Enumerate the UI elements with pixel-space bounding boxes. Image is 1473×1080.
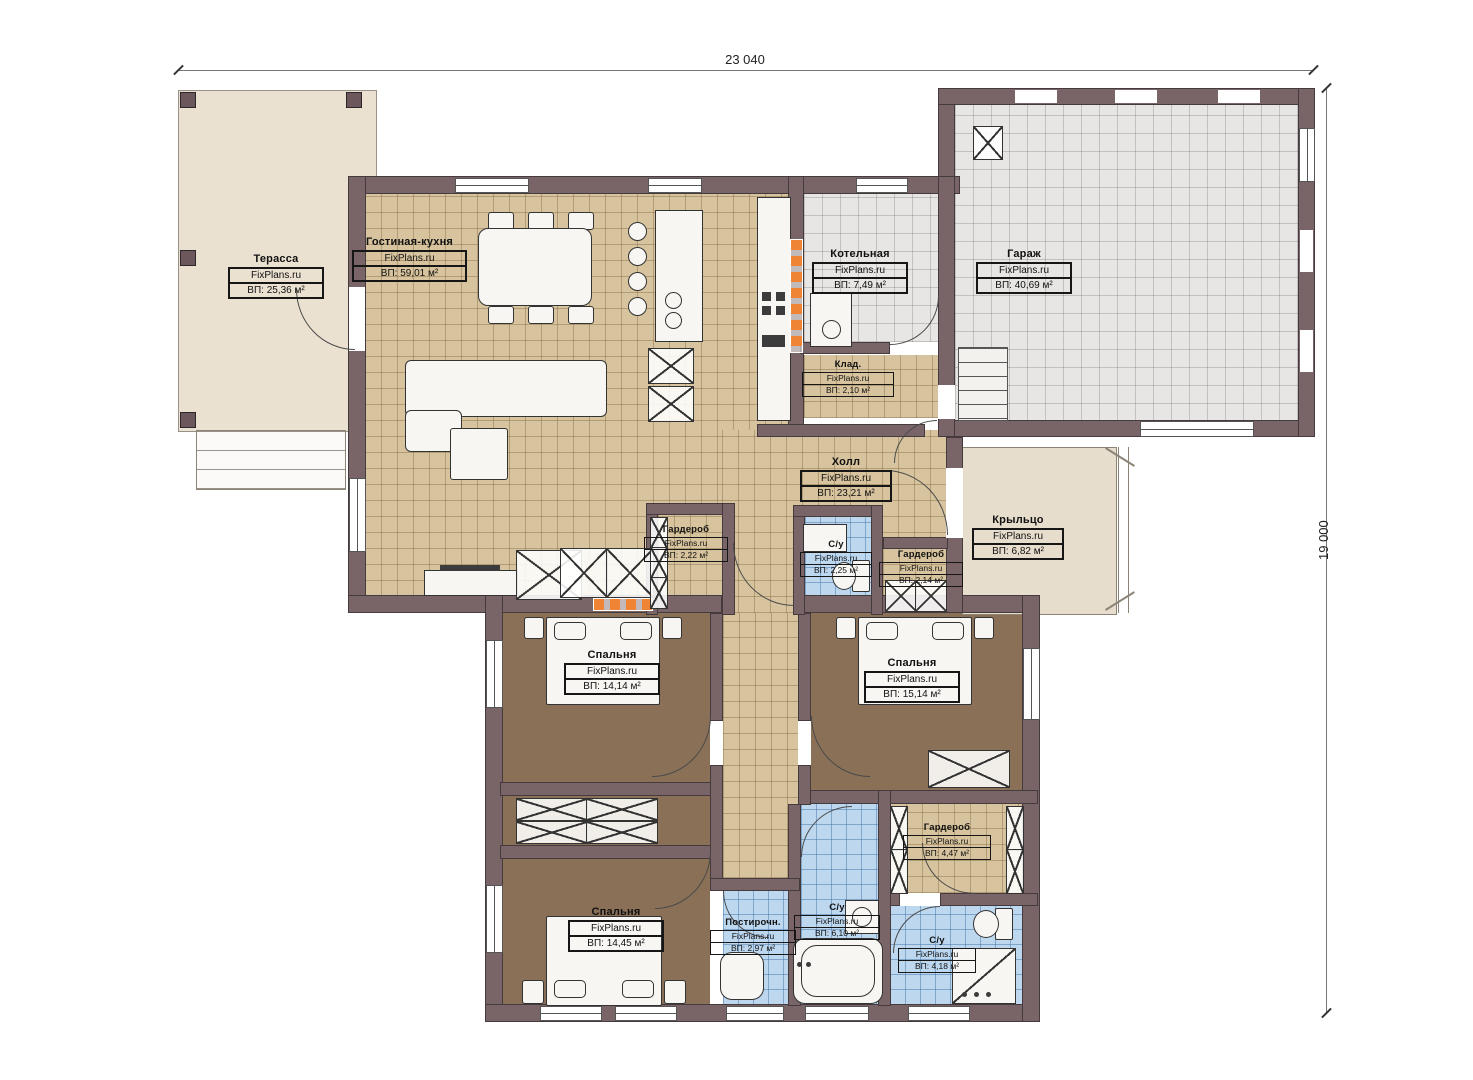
garage-pilaster xyxy=(1300,330,1313,372)
window xyxy=(648,178,702,193)
watermark-text: FixPlans.ru xyxy=(711,931,795,943)
wall-segment xyxy=(757,424,925,437)
window xyxy=(856,178,908,193)
room-area: ВП: 2,14 м² xyxy=(880,575,962,586)
wall-segment xyxy=(890,893,900,906)
room-name: С/у xyxy=(794,903,880,914)
faucet-dot xyxy=(797,962,802,967)
garage-pilaster xyxy=(1115,90,1157,103)
room-area: ВП: 4,18 м² xyxy=(899,961,975,972)
room-area: ВП: 2,97 м² xyxy=(711,943,795,954)
pillow xyxy=(620,622,652,640)
pillow xyxy=(554,622,586,640)
boiler-dial xyxy=(822,320,841,339)
stove-burner xyxy=(776,306,785,315)
radiator xyxy=(594,599,652,610)
dimension-line-top xyxy=(178,70,1313,71)
wall-segment xyxy=(793,505,883,517)
room-label-bedroom1: Спальня FixPlans.ru ВП: 14,14 м² xyxy=(564,649,660,695)
dining-table xyxy=(478,228,592,306)
room-name: Гостиная-кухня xyxy=(352,236,467,249)
stairs xyxy=(958,347,1008,421)
chair xyxy=(568,306,594,324)
terrace-post xyxy=(180,92,196,108)
closet-hatch xyxy=(560,548,608,598)
vent-shaft xyxy=(973,126,1003,160)
closet-hatch xyxy=(516,798,588,821)
room-area: ВП: 40,69 м² xyxy=(978,279,1070,292)
shower-dot xyxy=(986,992,991,997)
room-name: С/у xyxy=(898,936,976,947)
closet-hatch xyxy=(586,798,658,821)
room-area: ВП: 7,49 м² xyxy=(814,279,906,292)
appliance xyxy=(648,386,694,422)
room-label-wc3: С/у FixPlans.ru ВП: 4,18 м² xyxy=(898,936,976,973)
nightstand xyxy=(664,980,686,1004)
closet-hatch xyxy=(650,577,668,609)
room-name: Крыльцо xyxy=(972,514,1064,527)
stove-burner xyxy=(762,292,771,301)
garage-pilaster xyxy=(1218,90,1260,103)
room-label-wardrobe3: Гардероб FixPlans.ru ВП: 4,47 м² xyxy=(903,823,991,860)
room-area: ВП: 6,82 м² xyxy=(974,545,1062,558)
watermark-text: FixPlans.ru xyxy=(566,665,658,680)
watermark-text: FixPlans.ru xyxy=(899,949,975,961)
porch-step-line xyxy=(1128,447,1129,613)
room-label-hall: Холл FixPlans.ru ВП: 23,21 м² xyxy=(800,456,892,502)
stove-burner xyxy=(776,292,785,301)
watermark-text: FixPlans.ru xyxy=(803,373,893,385)
watermark-text: FixPlans.ru xyxy=(230,269,322,284)
room-area: ВП: 25,36 м² xyxy=(230,284,322,297)
window xyxy=(1299,128,1315,182)
room-area: ВП: 59,01 м² xyxy=(354,267,465,280)
room-name: Спальня xyxy=(864,657,960,670)
nightstand xyxy=(524,617,544,639)
room-label-wardrobe1: Гардероб FixPlans.ru ВП: 2,22 м² xyxy=(644,525,728,562)
bathtub-inner xyxy=(801,945,875,997)
washing-machine xyxy=(720,952,764,1000)
window xyxy=(805,1006,869,1021)
faucet-dot xyxy=(806,962,811,967)
room-label-wc1: С/у FixPlans.ru ВП: 2,25 м² xyxy=(800,540,872,577)
terrace-post xyxy=(346,92,362,108)
room-label-wardrobe2: Гардероб FixPlans.ru ВП: 2,14 м² xyxy=(879,550,963,587)
pillow xyxy=(866,622,898,640)
room-label-garage: Гараж FixPlans.ru ВП: 40,69 м² xyxy=(976,248,1072,294)
room-name: Спальня xyxy=(564,649,660,662)
watermark-text: FixPlans.ru xyxy=(802,472,890,487)
tv xyxy=(440,565,500,571)
porch-step-line xyxy=(1118,447,1119,613)
room-name: Постирочн. xyxy=(710,918,796,929)
garage-pilaster xyxy=(1300,230,1313,272)
dimension-height-label: 19 000 xyxy=(1316,505,1331,575)
room-area: ВП: 14,14 м² xyxy=(566,680,658,693)
wall-segment xyxy=(710,765,723,885)
bar-stool xyxy=(628,272,647,291)
sink-bowl xyxy=(665,292,682,309)
room-area: ВП: 15,14 м² xyxy=(866,688,958,701)
shower-dot xyxy=(974,992,979,997)
chair xyxy=(488,306,514,324)
room-label-wc2: С/у FixPlans.ru ВП: 6,10 м² xyxy=(794,903,880,940)
room-area: ВП: 14,45 м² xyxy=(570,937,662,950)
tv-stand xyxy=(424,570,518,596)
room-area: ВП: 2,10 м² xyxy=(803,385,893,396)
watermark-text: FixPlans.ru xyxy=(880,563,962,575)
watermark-text: FixPlans.ru xyxy=(570,922,662,937)
pillow xyxy=(622,980,654,998)
terrace-post xyxy=(180,250,196,266)
watermark-text: FixPlans.ru xyxy=(801,553,871,565)
watermark-text: FixPlans.ru xyxy=(974,530,1062,545)
shower-dot xyxy=(962,992,967,997)
garage-pilaster xyxy=(1015,90,1057,103)
room-name: Котельная xyxy=(812,248,908,261)
room-name: С/у xyxy=(800,540,872,551)
room-area: ВП: 2,22 м² xyxy=(645,550,727,561)
room-area: ВП: 6,10 м² xyxy=(795,928,879,939)
wall-segment xyxy=(646,503,734,515)
watermark-text: FixPlans.ru xyxy=(814,264,906,279)
front-door-opening xyxy=(946,468,963,538)
sink-bowl xyxy=(665,312,682,329)
window xyxy=(486,885,503,953)
window xyxy=(455,178,529,193)
watermark-text: FixPlans.ru xyxy=(645,538,727,550)
wall-segment xyxy=(798,765,811,805)
window xyxy=(1023,648,1040,720)
window xyxy=(540,1006,602,1021)
window xyxy=(615,1006,677,1021)
room-name: Клад. xyxy=(802,360,894,371)
window xyxy=(349,478,366,552)
wall-segment xyxy=(348,595,502,613)
terrace-steps xyxy=(196,430,346,490)
room-label-bedroom3: Спальня FixPlans.ru ВП: 14,45 м² xyxy=(568,906,664,952)
wall-segment xyxy=(710,613,723,721)
room-name: Гардероб xyxy=(644,525,728,536)
nightstand xyxy=(662,617,682,639)
room-label-bedroom2: Спальня FixPlans.ru ВП: 15,14 м² xyxy=(864,657,960,703)
bar-stool xyxy=(628,297,647,316)
closet-hatch xyxy=(1006,806,1024,851)
window xyxy=(726,1006,784,1021)
stove-burner xyxy=(762,306,771,315)
watermark-text: FixPlans.ru xyxy=(978,264,1070,279)
watermark-text: FixPlans.ru xyxy=(904,836,990,848)
nightstand xyxy=(974,617,994,639)
radiator xyxy=(791,240,802,352)
closet-hatch xyxy=(516,821,588,844)
toilet-bowl xyxy=(973,910,999,938)
room-label-boiler: Котельная FixPlans.ru ВП: 7,49 м² xyxy=(812,248,908,294)
room-label-storage: Клад. FixPlans.ru ВП: 2,10 м² xyxy=(802,360,894,397)
room-label-terrace: Терасса FixPlans.ru ВП: 25,36 м² xyxy=(228,253,324,299)
room-area: ВП: 4,47 м² xyxy=(904,848,990,859)
garage-door xyxy=(1140,421,1254,437)
door-opening xyxy=(938,385,955,419)
wall-segment xyxy=(883,537,948,549)
room-name: Терасса xyxy=(228,253,324,266)
nightstand xyxy=(836,617,856,639)
room-label-porch: Крыльцо FixPlans.ru ВП: 6,82 м² xyxy=(972,514,1064,560)
window xyxy=(908,1006,970,1021)
floor-plan: 23 040 19 000 xyxy=(0,0,1473,1080)
room-name: Гардероб xyxy=(879,550,963,561)
bar-stool xyxy=(628,222,647,241)
room-name: Спальня xyxy=(568,906,664,919)
room-name: Холл xyxy=(800,456,892,469)
room-name: Гардероб xyxy=(903,823,991,834)
wall-segment xyxy=(798,790,1038,804)
wall-segment xyxy=(500,782,722,796)
coffee-table xyxy=(450,428,508,480)
wall-segment xyxy=(946,420,1315,437)
wall-segment xyxy=(710,878,800,891)
appliance xyxy=(648,348,694,384)
wall-segment xyxy=(798,613,811,721)
chair xyxy=(528,306,554,324)
room-name: Гараж xyxy=(976,248,1072,261)
oven xyxy=(762,335,785,347)
nightstand xyxy=(522,980,544,1004)
closet-hatch xyxy=(586,821,658,844)
room-label-living: Гостиная-кухня FixPlans.ru ВП: 59,01 м² xyxy=(352,236,467,282)
sofa xyxy=(405,360,607,417)
room-label-laundry: Постирочн. FixPlans.ru ВП: 2,97 м² xyxy=(710,918,796,955)
watermark-text: FixPlans.ru xyxy=(866,673,958,688)
room-area: ВП: 2,25 м² xyxy=(801,565,871,576)
room-area: ВП: 23,21 м² xyxy=(802,487,890,500)
closet-hatch xyxy=(1006,849,1024,894)
terrace-post xyxy=(180,412,196,428)
bar-stool xyxy=(628,247,647,266)
watermark-text: FixPlans.ru xyxy=(795,916,879,928)
corridor-floor xyxy=(723,613,798,878)
wall-segment xyxy=(940,893,1038,906)
window xyxy=(486,640,503,708)
watermark-text: FixPlans.ru xyxy=(354,252,465,267)
pillow xyxy=(932,622,964,640)
closet-hatch xyxy=(928,750,1010,788)
pillow xyxy=(554,980,586,998)
dimension-width-label: 23 040 xyxy=(700,52,790,67)
